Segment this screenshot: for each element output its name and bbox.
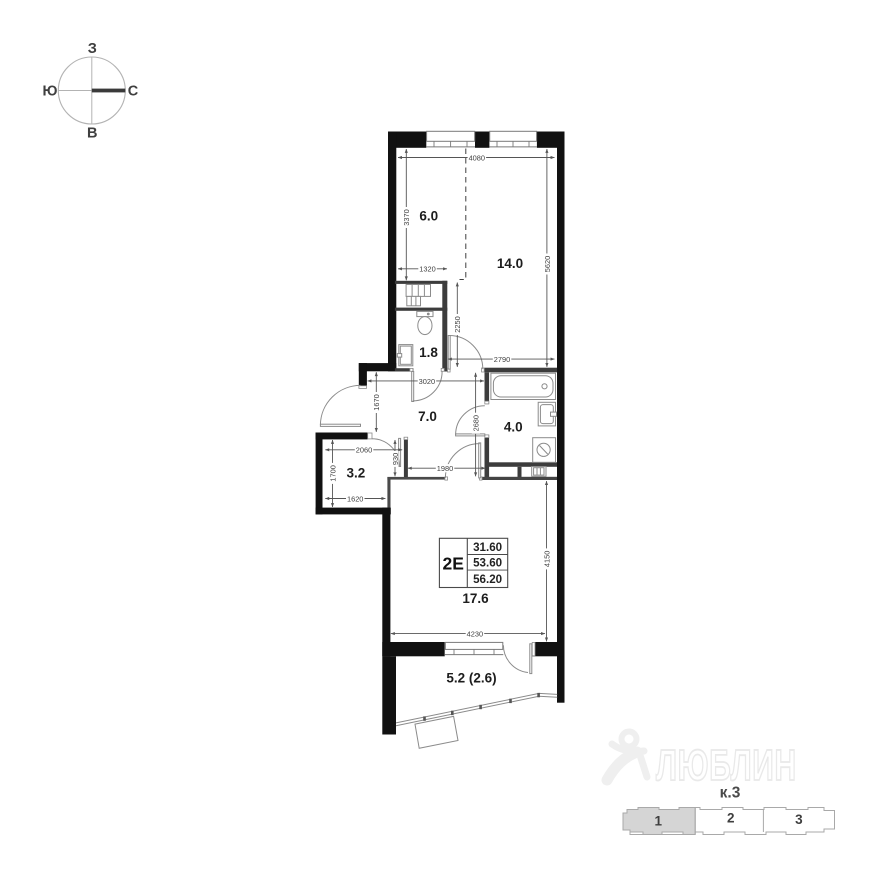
svg-text:5.2 (2.6): 5.2 (2.6) (446, 671, 496, 686)
svg-text:14.0: 14.0 (497, 256, 523, 271)
svg-text:3: 3 (795, 812, 803, 827)
svg-text:ЛЮБЛИН: ЛЮБЛИН (656, 740, 797, 789)
svg-text:6.0: 6.0 (419, 209, 438, 224)
svg-text:17.6: 17.6 (462, 591, 489, 606)
svg-text:1670: 1670 (372, 394, 381, 410)
svg-text:Ю: Ю (43, 84, 58, 100)
svg-text:1: 1 (655, 813, 663, 828)
svg-text:930: 930 (391, 453, 400, 465)
svg-text:53.60: 53.60 (473, 557, 502, 570)
svg-text:3.2: 3.2 (347, 465, 366, 480)
svg-text:к.3: к.3 (720, 785, 741, 802)
svg-text:7.0: 7.0 (418, 409, 437, 424)
svg-text:2Е: 2Е (442, 554, 463, 574)
svg-text:1.8: 1.8 (419, 345, 438, 360)
svg-text:1700: 1700 (328, 465, 337, 481)
svg-text:1980: 1980 (437, 464, 453, 473)
svg-text:56.20: 56.20 (473, 573, 502, 586)
svg-text:З: З (88, 41, 97, 57)
svg-text:3020: 3020 (419, 377, 435, 386)
svg-text:С: С (128, 84, 139, 100)
svg-text:4150: 4150 (542, 551, 551, 567)
svg-text:31.60: 31.60 (473, 541, 502, 554)
svg-text:В: В (87, 126, 97, 142)
svg-text:4.0: 4.0 (504, 419, 523, 434)
svg-text:2: 2 (727, 811, 735, 826)
svg-text:4230: 4230 (467, 630, 483, 639)
svg-text:2680: 2680 (472, 415, 481, 431)
svg-text:2790: 2790 (494, 355, 510, 364)
svg-text:5620: 5620 (543, 256, 552, 272)
svg-text:2250: 2250 (453, 316, 462, 332)
svg-text:2060: 2060 (356, 446, 372, 455)
svg-text:1620: 1620 (347, 494, 363, 503)
svg-text:4080: 4080 (469, 153, 485, 162)
svg-text:3370: 3370 (402, 209, 411, 225)
svg-text:1320: 1320 (419, 265, 435, 274)
